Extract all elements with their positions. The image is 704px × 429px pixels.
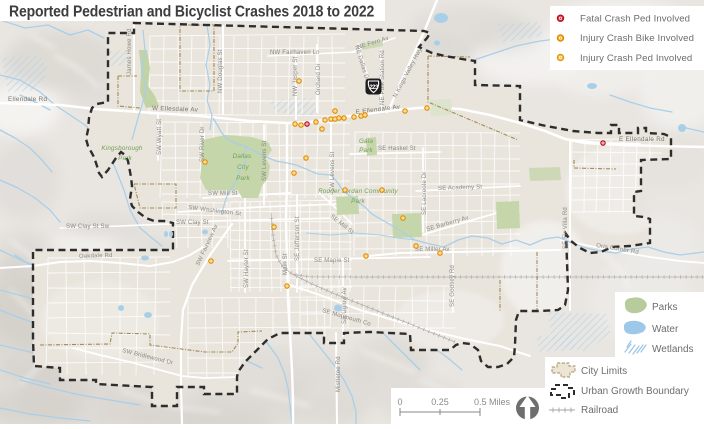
- svg-text:SW Wyatt St: SW Wyatt St: [157, 119, 163, 155]
- svg-text:Park: Park: [118, 155, 132, 162]
- svg-text:Kingsborough: Kingsborough: [101, 145, 143, 152]
- svg-text:James Howe Rd: James Howe Rd: [127, 28, 133, 75]
- svg-text:Injury Crash Ped Involved: Injury Crash Ped Involved: [580, 53, 692, 64]
- svg-text:City: City: [237, 164, 249, 171]
- svg-text:SW Clay St: SW Clay St: [176, 220, 209, 226]
- svg-text:Ellendale Rd: Ellendale Rd: [8, 96, 48, 103]
- svg-text:NW Douglas St: NW Douglas St: [218, 49, 224, 93]
- svg-text:NW Jasper St: NW Jasper St: [293, 56, 299, 96]
- svg-text:Park: Park: [351, 198, 365, 205]
- svg-text:Urban Growth Boundary: Urban Growth Boundary: [581, 386, 689, 397]
- svg-text:Main St: Main St: [283, 253, 289, 275]
- svg-text:Mistletoe Rd: Mistletoe Rd: [336, 356, 342, 392]
- svg-text:SE Haskel St: SE Haskel St: [378, 146, 416, 152]
- svg-text:SE Jefferson St: SE Jefferson St: [295, 216, 301, 261]
- svg-text:NW Fairhaven Ln: NW Fairhaven Ln: [270, 50, 320, 56]
- svg-text:0: 0: [397, 397, 402, 407]
- svg-text:Orchard Dr: Orchard Dr: [316, 63, 322, 95]
- svg-text:SE Miller Av: SE Miller Av: [415, 247, 450, 253]
- svg-text:SW Hayter St: SW Hayter St: [244, 249, 250, 288]
- svg-text:Fatal Crash Ped Involved: Fatal Crash Ped Involved: [580, 13, 690, 24]
- svg-text:SE Godsey Rd: SE Godsey Rd: [450, 265, 456, 307]
- svg-text:Park: Park: [359, 147, 373, 154]
- svg-text:0.25: 0.25: [431, 397, 449, 407]
- svg-text:0.5 Miles: 0.5 Miles: [474, 397, 511, 407]
- svg-text:Rodger Jordan Community: Rodger Jordan Community: [318, 188, 398, 195]
- svg-text:Wetlands: Wetlands: [652, 344, 694, 355]
- svg-text:E Ellendale Rd: E Ellendale Rd: [619, 136, 665, 143]
- svg-text:SW Mill St: SW Mill St: [208, 191, 238, 197]
- svg-text:Railroad: Railroad: [581, 405, 618, 416]
- svg-text:Gala: Gala: [359, 138, 373, 145]
- svg-text:SE Maple St: SE Maple St: [314, 258, 350, 264]
- svg-text:Reported Pedestrian and Bicycl: Reported Pedestrian and Bicyclist Crashe…: [9, 3, 374, 21]
- svg-text:SE Fir Villa Rd: SE Fir Villa Rd: [563, 207, 569, 249]
- svg-text:Parks: Parks: [652, 302, 678, 313]
- svg-text:Park: Park: [236, 175, 250, 182]
- svg-text:SW Levens St: SW Levens St: [262, 140, 268, 181]
- svg-text:City Limits: City Limits: [581, 366, 627, 377]
- svg-text:Water: Water: [652, 324, 679, 335]
- svg-text:SW River Dr: SW River Dr: [200, 126, 206, 162]
- svg-text:223: 223: [369, 85, 379, 91]
- svg-text:SE Lacreole Dr: SE Lacreole Dr: [422, 172, 428, 216]
- svg-text:Oakdale Rd: Oakdale Rd: [79, 253, 113, 260]
- svg-text:NE Polk Station Rd: NE Polk Station Rd: [380, 50, 386, 105]
- svg-text:Injury Crash Bike Involved: Injury Crash Bike Involved: [580, 33, 694, 44]
- svg-text:SW Clay St Sw: SW Clay St Sw: [66, 224, 110, 230]
- svg-text:Dallas: Dallas: [233, 153, 252, 160]
- svg-text:SW Levens St: SW Levens St: [330, 151, 336, 192]
